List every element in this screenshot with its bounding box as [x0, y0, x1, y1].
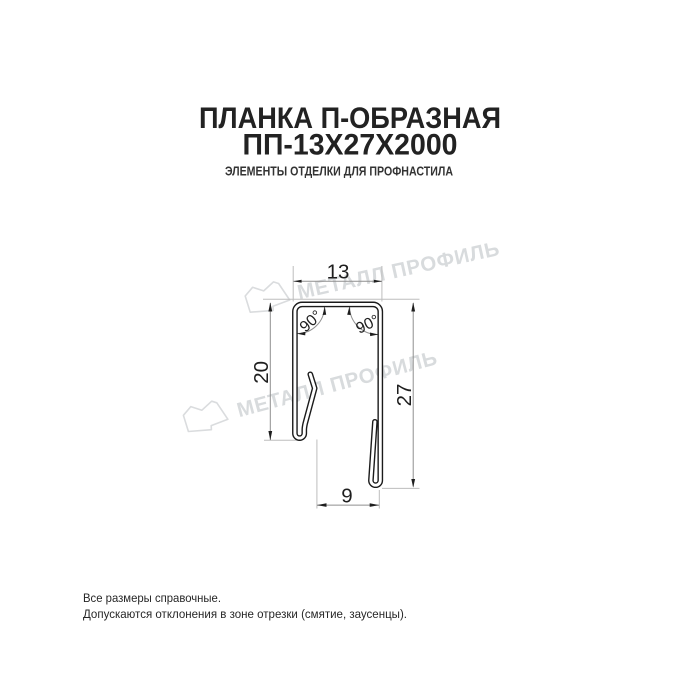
svg-text:ЭЛЕМЕНТЫ ОТДЕЛКИ ДЛЯ ПРОФНАСТИ: ЭЛЕМЕНТЫ ОТДЕЛКИ ДЛЯ ПРОФНАСТИЛА: [225, 165, 453, 179]
svg-text:Все размеры справочные.: Все размеры справочные.: [83, 591, 221, 605]
svg-text:Допускаются отклонения в зоне: Допускаются отклонения в зоне отрезки (с…: [83, 607, 407, 621]
svg-text:13: 13: [327, 261, 350, 284]
svg-text:ПП-13Х27Х2000: ПП-13Х27Х2000: [243, 128, 458, 161]
svg-text:27: 27: [393, 384, 416, 407]
svg-text:20: 20: [250, 361, 273, 384]
svg-text:9: 9: [341, 485, 352, 508]
